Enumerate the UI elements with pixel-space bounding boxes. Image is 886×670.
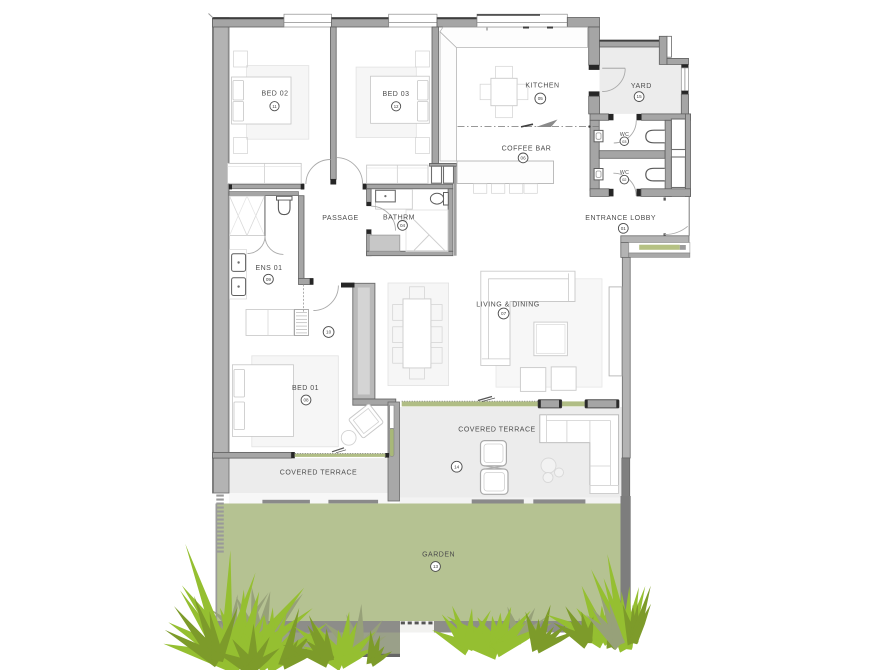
svg-text:14: 14 — [454, 464, 460, 469]
svg-text:ENS 01: ENS 01 — [255, 265, 282, 272]
svg-text:09: 09 — [266, 277, 272, 282]
svg-text:05: 05 — [538, 96, 544, 101]
svg-text:04: 04 — [400, 223, 406, 228]
svg-text:08: 08 — [303, 398, 309, 403]
svg-text:PASSAGE: PASSAGE — [322, 215, 358, 222]
svg-text:BED 02: BED 02 — [261, 91, 288, 98]
svg-text:11: 11 — [272, 104, 277, 109]
svg-text:COFFEE BAR: COFFEE BAR — [502, 146, 552, 153]
svg-text:COVERED TERRACE: COVERED TERRACE — [458, 426, 535, 433]
svg-text:BED 03: BED 03 — [382, 91, 409, 98]
svg-text:13: 13 — [433, 564, 439, 569]
svg-text:BATHRM: BATHRM — [383, 215, 415, 222]
svg-text:06: 06 — [521, 156, 527, 161]
svg-text:01: 01 — [621, 226, 627, 231]
svg-text:ENTRANCE LOBBY: ENTRANCE LOBBY — [585, 215, 656, 222]
svg-text:LIVING & DINING: LIVING & DINING — [476, 301, 540, 308]
svg-text:10: 10 — [326, 330, 332, 335]
svg-text:COVERED TERRACE: COVERED TERRACE — [280, 470, 357, 477]
svg-text:BED 01: BED 01 — [292, 385, 319, 392]
svg-text:15: 15 — [637, 94, 643, 99]
svg-text:12: 12 — [394, 104, 399, 109]
svg-text:GARDEN: GARDEN — [422, 552, 455, 559]
svg-text:KITCHEN: KITCHEN — [525, 83, 559, 90]
svg-text:03: 03 — [622, 139, 627, 144]
svg-text:YARD: YARD — [631, 83, 652, 90]
svg-text:07: 07 — [501, 311, 507, 316]
svg-text:02: 02 — [622, 177, 627, 182]
